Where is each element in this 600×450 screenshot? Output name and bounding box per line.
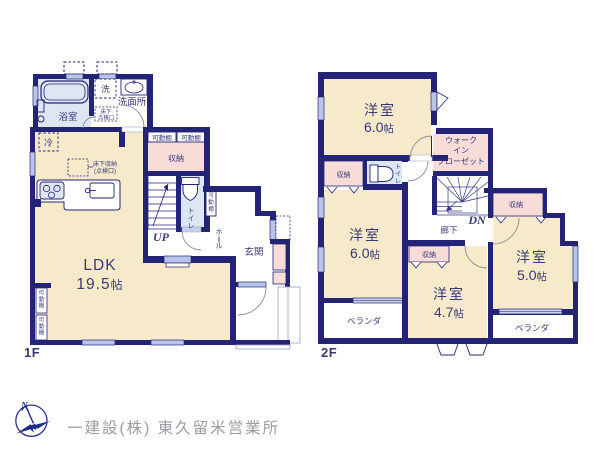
svg-text:床下収納: 床下収納 [93, 160, 117, 168]
svg-text:(点検口): (点検口) [94, 167, 116, 175]
svg-text:一建設(株) 東久留米営業所: 一建設(株) 東久留米営業所 [67, 419, 280, 437]
svg-text:点検口: 点検口 [98, 114, 115, 122]
svg-text:洋室: 洋室 [516, 249, 548, 265]
svg-text:レ: レ [188, 223, 195, 230]
svg-text:イン: イン [453, 146, 469, 155]
svg-text:19.5帖: 19.5帖 [76, 276, 123, 293]
svg-text:ベランダ: ベランダ [515, 323, 550, 333]
svg-text:可動棚: 可動棚 [181, 133, 201, 142]
svg-text:洋室: 洋室 [364, 102, 396, 118]
svg-text:浴室: 浴室 [58, 111, 77, 123]
svg-text:可: 可 [208, 192, 214, 199]
svg-text:収納: 収納 [337, 170, 351, 179]
svg-text:洗面所: 洗面所 [118, 96, 147, 108]
svg-text:収納: 収納 [168, 153, 184, 163]
svg-text:イ: イ [395, 172, 401, 178]
svg-text:洋室: 洋室 [433, 286, 465, 302]
svg-text:洋室: 洋室 [349, 227, 381, 243]
svg-text:冷: 冷 [44, 137, 53, 148]
svg-text:玄関: 玄関 [244, 246, 263, 258]
svg-text:可: 可 [39, 317, 45, 324]
svg-text:収納: 収納 [509, 200, 523, 209]
svg-text:棚: 棚 [208, 205, 214, 213]
svg-text:床下: 床下 [100, 108, 112, 116]
svg-text:棚: 棚 [39, 302, 45, 310]
svg-text:可動棚: 可動棚 [152, 133, 172, 142]
svg-text:N: N [20, 401, 28, 411]
svg-text:ベランダ: ベランダ [347, 316, 382, 326]
svg-text:収納: 収納 [422, 250, 436, 259]
svg-text:洗: 洗 [101, 84, 110, 94]
svg-text:ル: ル [216, 243, 223, 250]
svg-text:ト: ト [188, 208, 195, 215]
svg-text:廊下: 廊下 [440, 225, 458, 235]
svg-text:LDK: LDK [83, 257, 116, 274]
svg-text:DN: DN [467, 213, 487, 227]
svg-text:クローゼット: クローゼット [437, 156, 485, 166]
svg-text:ウォーク: ウォーク [445, 136, 477, 145]
svg-text:動: 動 [208, 198, 214, 206]
svg-text:UP: UP [153, 230, 170, 244]
svg-text:棚: 棚 [39, 329, 45, 337]
svg-text:可: 可 [39, 290, 45, 297]
svg-text:動: 動 [39, 295, 45, 303]
svg-text:レ: レ [395, 179, 401, 185]
svg-text:2F: 2F [321, 345, 337, 360]
svg-text:イ: イ [188, 216, 195, 223]
svg-text:動: 動 [39, 322, 45, 330]
svg-text:1F: 1F [24, 345, 40, 360]
svg-text:ト: ト [395, 165, 401, 171]
svg-text:ホ: ホ [216, 228, 223, 236]
